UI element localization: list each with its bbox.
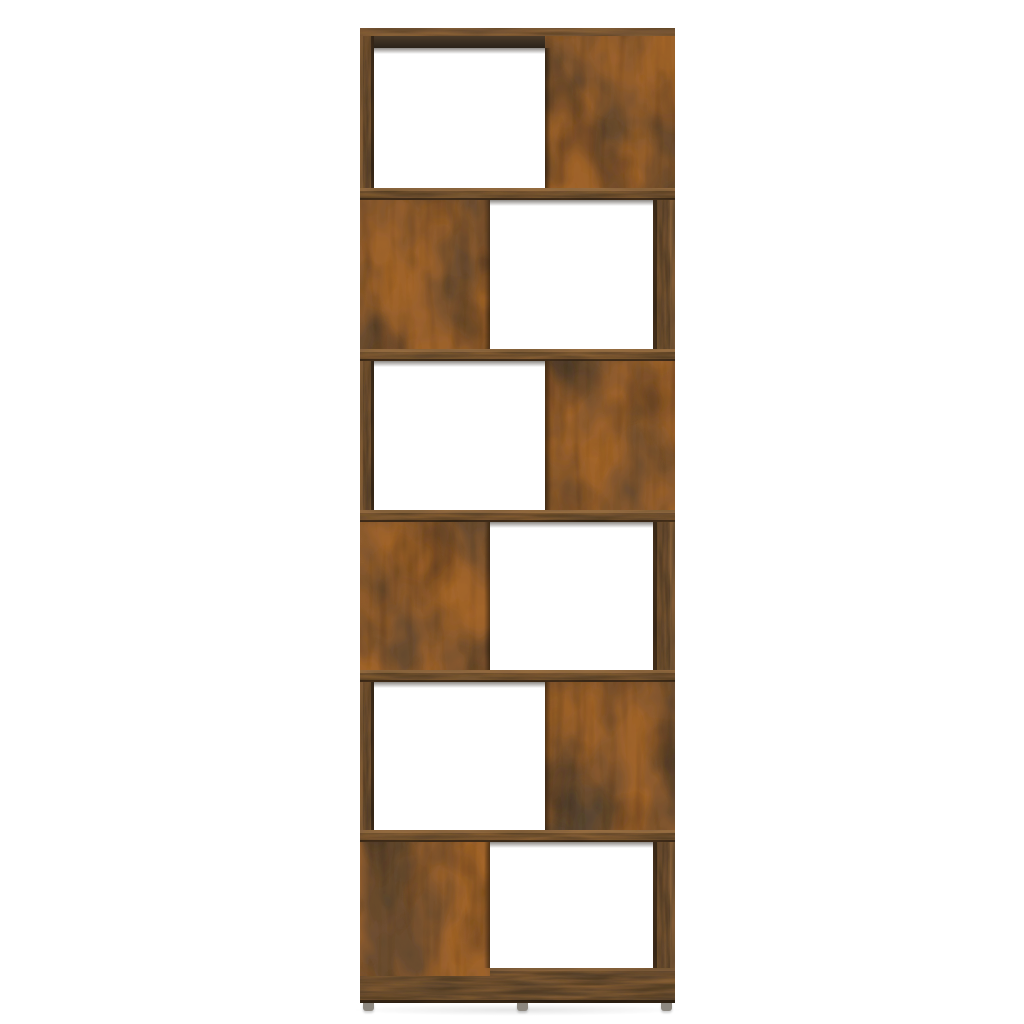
back-panel-right [545, 36, 675, 188]
divider-edge [484, 522, 490, 670]
back-panel-right [545, 682, 675, 830]
open-compartment [374, 48, 545, 188]
woodgrain-texture [360, 670, 675, 682]
foot-center [517, 1003, 528, 1011]
woodgrain-texture [360, 522, 490, 670]
top-board-underside-shadow [360, 36, 545, 48]
product-photo [0, 0, 1024, 1024]
woodgrain-texture [360, 510, 675, 522]
shelf-board-4 [360, 670, 675, 682]
woodgrain-texture [545, 36, 675, 188]
divider-edge [484, 200, 490, 349]
foot-left [363, 1003, 374, 1011]
side-panel-edge [653, 522, 675, 670]
tier-1 [360, 48, 675, 188]
woodgrain-texture [360, 200, 490, 349]
inner-shadow [490, 842, 653, 848]
foot-right [661, 1003, 672, 1011]
back-panel-right [545, 361, 675, 510]
back-panel-left [360, 842, 490, 976]
woodgrain-texture [653, 842, 675, 968]
tier-6 [360, 842, 675, 968]
woodgrain-texture [360, 28, 675, 36]
inner-shadow [374, 361, 545, 367]
woodgrain-texture [360, 682, 374, 830]
side-panel-edge [360, 682, 374, 830]
woodgrain-texture [360, 188, 675, 200]
inner-shadow [490, 522, 653, 528]
inner-shadow [374, 682, 545, 688]
divider-edge [545, 682, 551, 830]
woodgrain-texture [360, 842, 490, 976]
tier-3 [360, 361, 675, 510]
back-panel-left [360, 522, 490, 670]
open-compartment [374, 682, 545, 830]
woodgrain-texture [653, 200, 675, 349]
tier-4 [360, 522, 675, 670]
inner-shadow [490, 200, 653, 206]
side-panel-edge [360, 361, 374, 510]
divider-edge [545, 361, 551, 510]
back-panel-left [360, 200, 490, 349]
divider-edge [545, 48, 551, 188]
tier-2 [360, 200, 675, 349]
shelf-board-5 [360, 830, 675, 842]
tier-5 [360, 682, 675, 830]
side-panel-edge [360, 36, 374, 188]
shelf-board-1 [360, 188, 675, 200]
shelf-board-2 [360, 349, 675, 361]
woodgrain-texture [360, 349, 675, 361]
open-compartment [490, 522, 653, 670]
woodgrain-texture [360, 36, 374, 188]
side-panel-edge [653, 842, 675, 968]
side-panel-edge [653, 200, 675, 349]
shelf-board-3 [360, 510, 675, 522]
bookshelf [360, 28, 675, 1003]
woodgrain-texture [545, 682, 675, 830]
woodgrain-texture [545, 361, 675, 510]
top-board [360, 28, 675, 36]
open-compartment [490, 842, 653, 968]
inner-shadow [374, 48, 545, 54]
open-compartment [374, 361, 545, 510]
woodgrain-texture [360, 830, 675, 842]
open-compartment [490, 200, 653, 349]
woodgrain-texture [360, 361, 374, 510]
woodgrain-texture [653, 522, 675, 670]
divider-edge [484, 842, 490, 968]
